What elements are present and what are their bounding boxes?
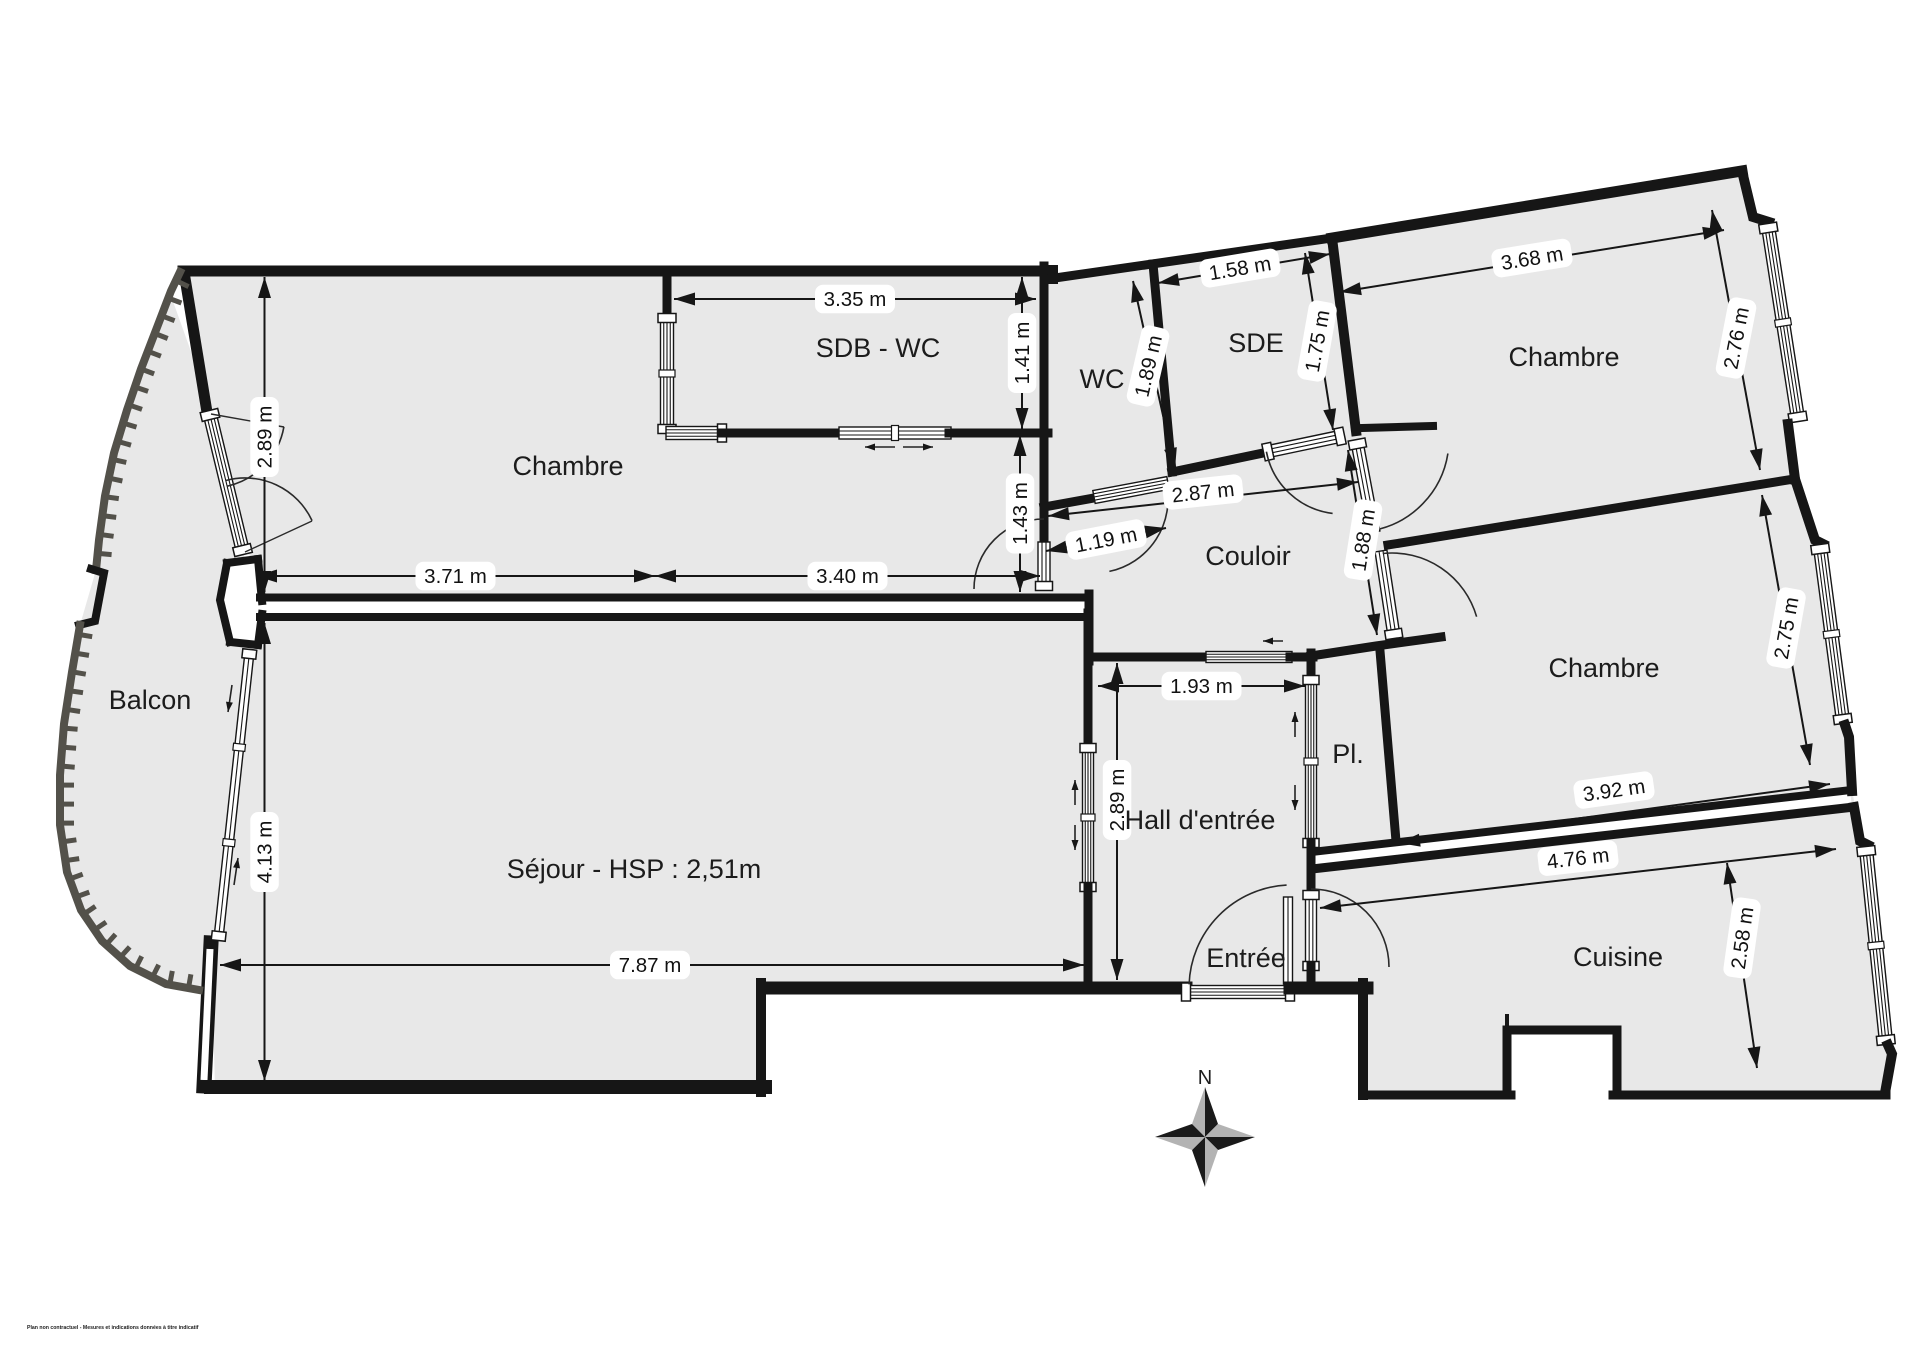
svg-text:N: N	[1198, 1067, 1212, 1089]
svg-text:Cuisine: Cuisine	[1573, 942, 1663, 972]
svg-text:Pl.: Pl.	[1332, 739, 1364, 769]
svg-text:1.93 m: 1.93 m	[1170, 675, 1233, 698]
svg-text:Chambre: Chambre	[512, 451, 623, 481]
svg-text:4.13 m: 4.13 m	[254, 821, 277, 884]
svg-text:Chambre: Chambre	[1548, 653, 1659, 683]
svg-text:Hall d'entrée: Hall d'entrée	[1125, 805, 1276, 835]
svg-text:SDB - WC: SDB - WC	[816, 333, 941, 363]
svg-text:Couloir: Couloir	[1205, 541, 1291, 571]
svg-text:SDE: SDE	[1228, 328, 1284, 358]
svg-text:3.35 m: 3.35 m	[824, 288, 887, 311]
svg-text:Séjour - HSP : 2,51m: Séjour - HSP : 2,51m	[507, 854, 762, 884]
svg-text:3.71 m: 3.71 m	[424, 565, 487, 588]
svg-text:2.89 m: 2.89 m	[254, 406, 277, 469]
svg-text:Balcon: Balcon	[109, 685, 192, 715]
svg-text:Plan non contractuel - Mesures: Plan non contractuel - Mesures et indica…	[27, 1325, 199, 1331]
svg-text:Entrée: Entrée	[1206, 943, 1286, 973]
svg-text:WC: WC	[1080, 364, 1125, 394]
svg-text:1.43 m: 1.43 m	[1009, 482, 1032, 545]
svg-text:1.41 m: 1.41 m	[1011, 322, 1034, 385]
svg-text:3.40 m: 3.40 m	[816, 565, 879, 588]
svg-text:Chambre: Chambre	[1508, 342, 1619, 372]
svg-text:7.87 m: 7.87 m	[619, 954, 682, 977]
